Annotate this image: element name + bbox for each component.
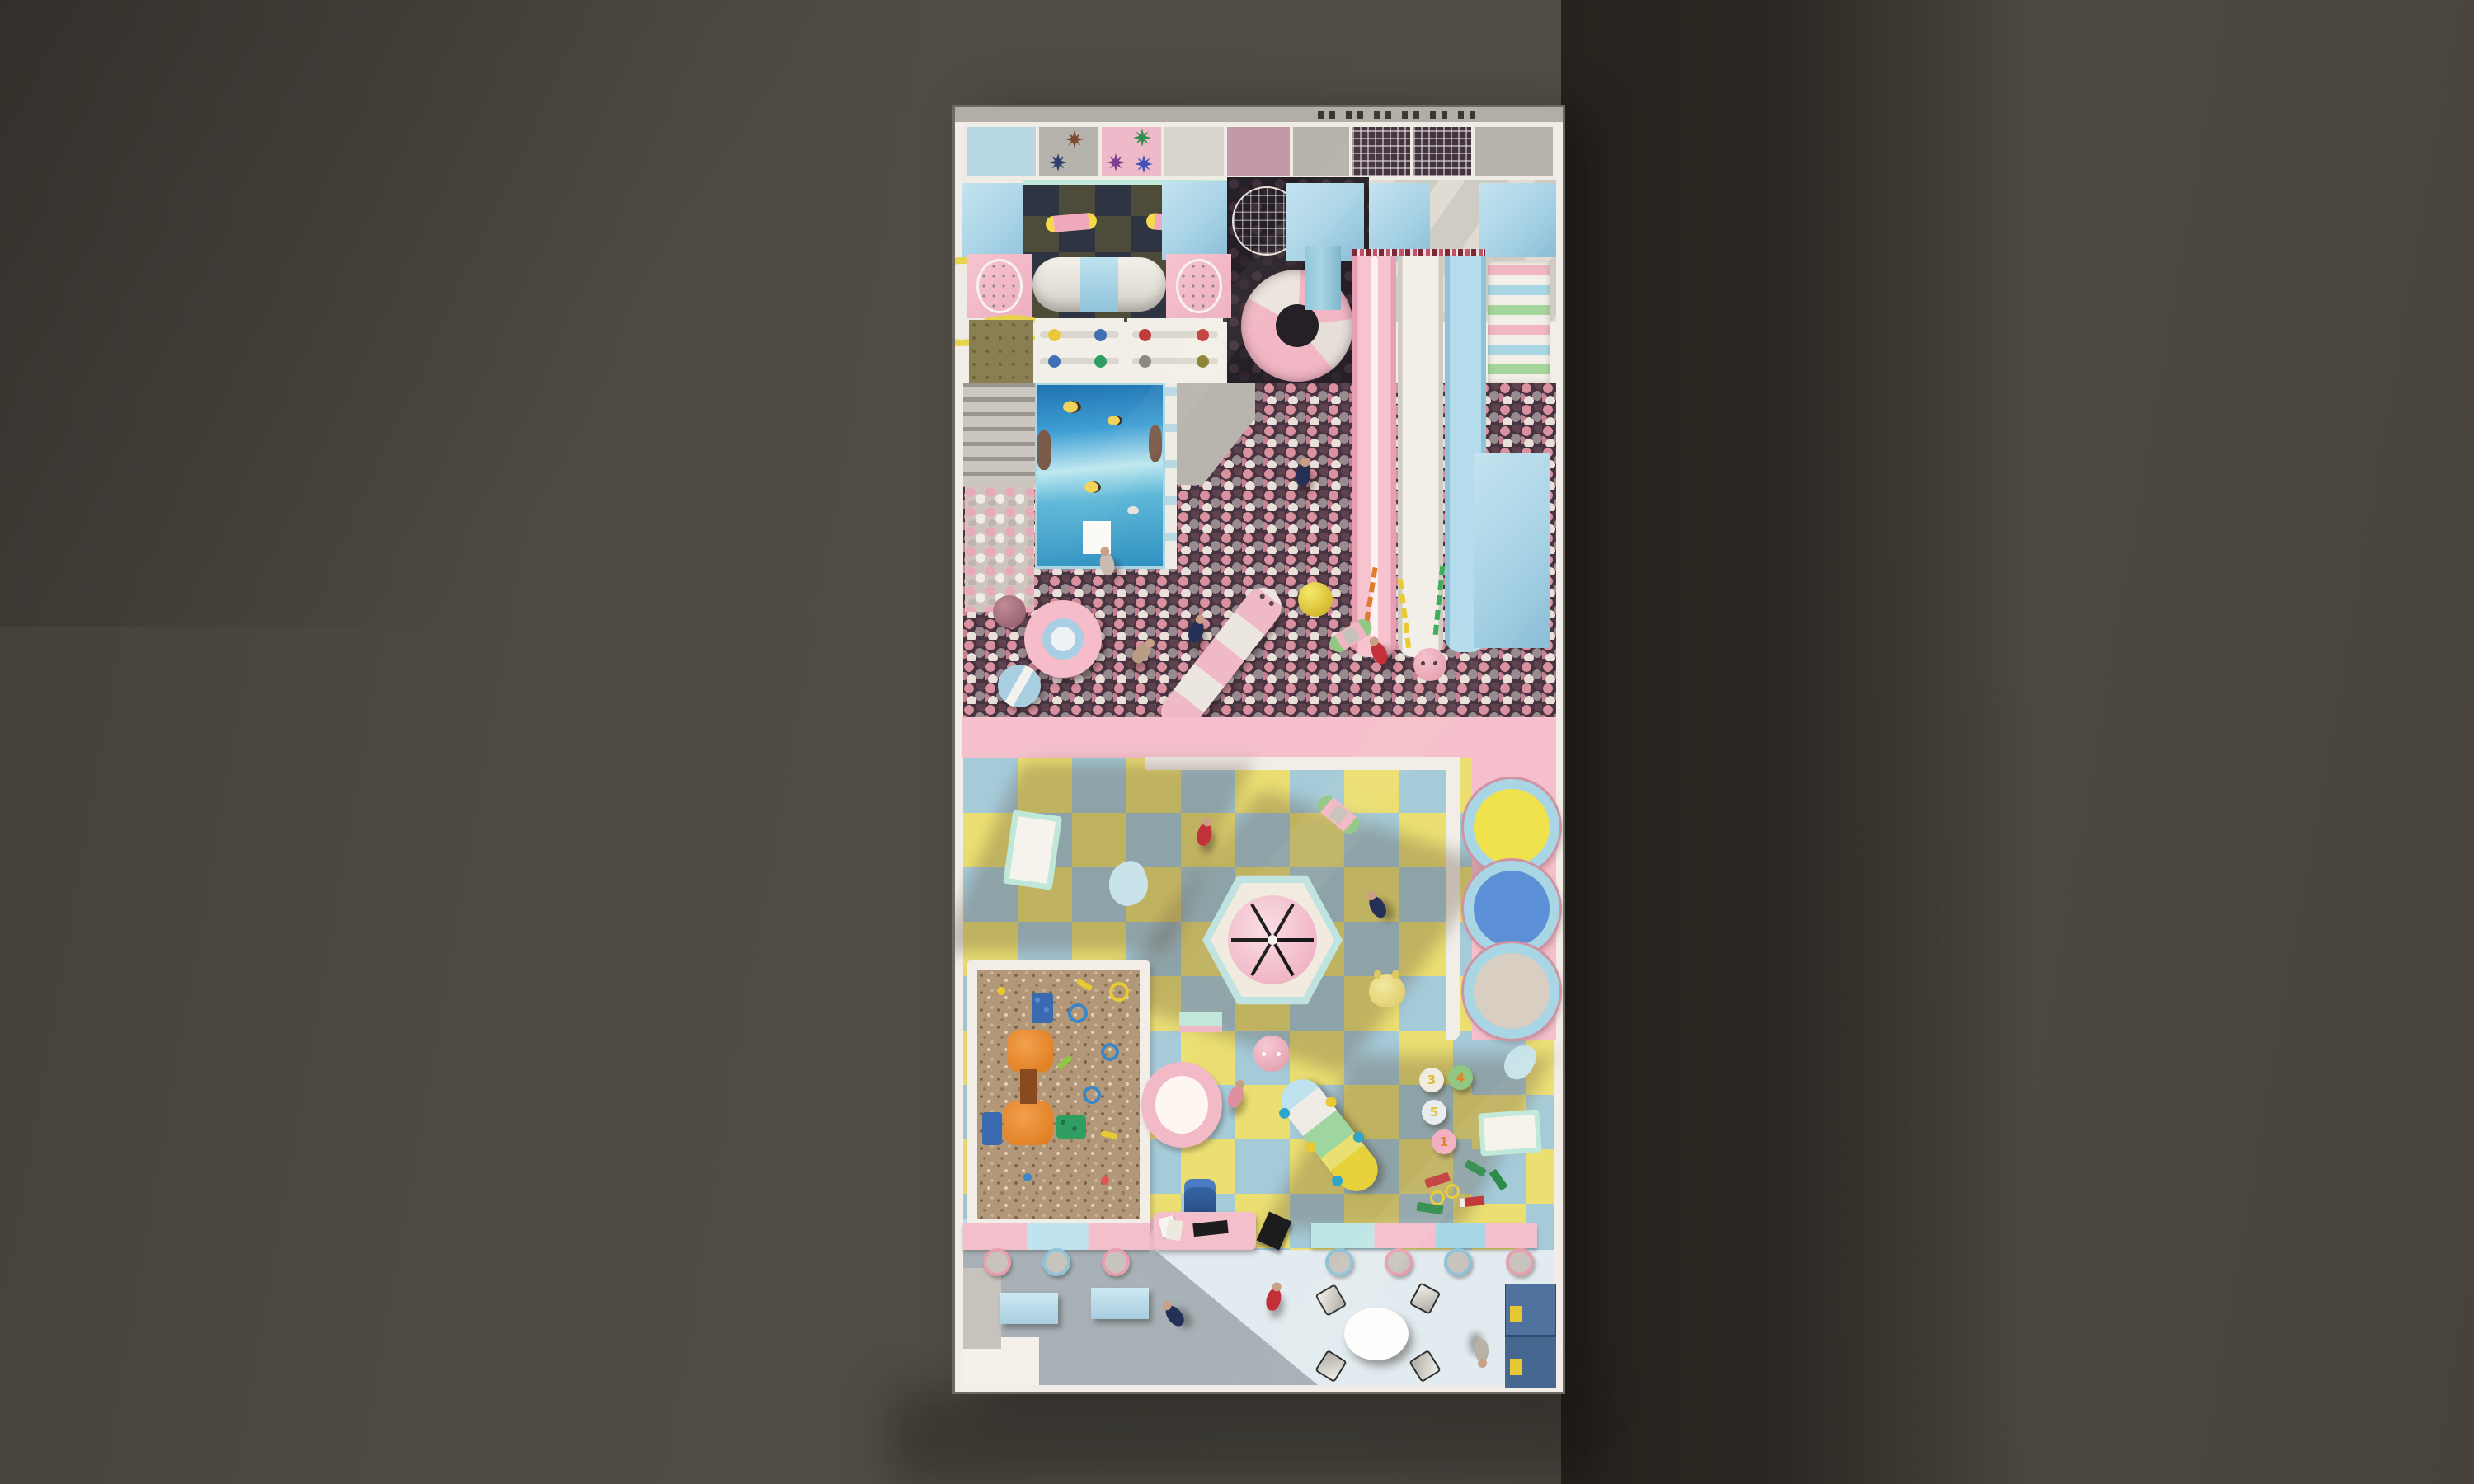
deck-toy xyxy=(1045,212,1098,232)
panel-spinners-pink xyxy=(1102,127,1161,176)
pink-ball-toy xyxy=(1253,1036,1290,1072)
round-stool xyxy=(1042,1248,1070,1276)
spiky-massage-ball xyxy=(1298,582,1333,617)
cylinder-blue-band xyxy=(1080,257,1118,312)
caterpillar-eye xyxy=(1259,593,1266,599)
track-ball xyxy=(1048,355,1061,368)
obstacle-rope xyxy=(1402,579,1407,648)
cabinet-label xyxy=(1510,1306,1522,1322)
stone-digit: 3 xyxy=(1427,1073,1436,1087)
gray-block xyxy=(963,1268,1001,1349)
track-ball xyxy=(1139,329,1151,341)
fish-icon xyxy=(1063,401,1081,413)
padded-block xyxy=(1479,183,1556,257)
round-trampoline-beige xyxy=(1464,943,1559,1039)
fish-icon xyxy=(1127,506,1139,514)
toy-shovel xyxy=(1056,1054,1073,1069)
caterpillar-eye xyxy=(1268,600,1275,607)
staircase xyxy=(963,383,1036,486)
sand-table xyxy=(1007,1030,1053,1073)
net-panel xyxy=(1413,127,1471,176)
reception-desk xyxy=(1154,1212,1256,1250)
duck-ear xyxy=(1374,970,1381,979)
panel-gray xyxy=(1475,127,1553,176)
padded-block xyxy=(1162,181,1227,260)
obstacle-rope xyxy=(1437,566,1442,635)
drum-float xyxy=(998,665,1041,707)
round-stool xyxy=(1444,1248,1472,1276)
donut-float xyxy=(1024,600,1102,678)
toy-ring xyxy=(1068,1003,1088,1023)
ball-eye xyxy=(1277,1052,1281,1056)
ambient-corner-shadow xyxy=(0,0,825,627)
toy-dot xyxy=(997,987,1005,995)
duck-ear xyxy=(1392,970,1399,979)
round-stool xyxy=(1102,1248,1130,1276)
shoe-cabinet xyxy=(1505,1284,1556,1388)
baby-cot xyxy=(1003,810,1062,890)
candy-stripe-bar xyxy=(1352,249,1485,256)
paper-sheet xyxy=(1165,1219,1183,1241)
toy-shovel xyxy=(1076,978,1094,991)
toy-ring xyxy=(1109,982,1129,1002)
ball-track-shelf xyxy=(1035,318,1124,383)
soft-bench xyxy=(1091,1288,1149,1319)
panel-light xyxy=(1164,127,1224,176)
crawl-cylinder xyxy=(1032,257,1166,312)
ball-eye xyxy=(1262,1052,1266,1056)
spinner-star-icon xyxy=(1107,153,1125,171)
toy-dot xyxy=(1023,1173,1032,1181)
stone-digit: 4 xyxy=(1456,1070,1465,1085)
panel-mauve xyxy=(1227,127,1290,176)
spiral-hole xyxy=(1276,304,1319,347)
track-ball xyxy=(1139,355,1151,368)
building-cast-shadow xyxy=(1561,0,2031,1484)
round-trampoline-blue xyxy=(1464,861,1559,956)
spinner-star-icon xyxy=(1065,130,1084,148)
floor-contact-shadow xyxy=(891,1390,1600,1484)
trampoline-block xyxy=(967,254,1032,318)
stepping-stone: 4 xyxy=(1448,1065,1473,1090)
track-ball xyxy=(1048,329,1061,341)
stepping-stone: 5 xyxy=(1422,1100,1446,1125)
track-ball xyxy=(1094,355,1107,368)
lego-block xyxy=(1032,993,1053,1023)
sand-table xyxy=(1004,1101,1053,1145)
stepping-stone: 3 xyxy=(1419,1068,1444,1092)
panel-blue xyxy=(967,127,1036,176)
spinner-star-icon xyxy=(1135,155,1153,173)
soft-bench xyxy=(1000,1293,1058,1324)
panel-spinners-gray xyxy=(1039,127,1098,176)
sand-bench-blue xyxy=(982,1112,1002,1145)
pink-border-band xyxy=(962,717,1556,758)
roller-slide xyxy=(1488,261,1550,384)
sign-board xyxy=(1192,1220,1228,1237)
pink-slide-lane xyxy=(1352,256,1396,657)
olive-mat xyxy=(969,320,1033,383)
duck-toy xyxy=(1369,974,1405,1007)
fish-icon xyxy=(1108,416,1122,425)
donut-center xyxy=(1051,627,1075,651)
track-ball xyxy=(1094,329,1107,341)
cabinet-label xyxy=(1510,1359,1522,1375)
mesh-oval-mat xyxy=(976,259,1023,313)
reef-rock xyxy=(1037,430,1051,470)
playground-floorplan: 3 4 5 1 xyxy=(955,107,1563,1392)
stone-digit: 5 xyxy=(1430,1105,1438,1120)
spinner-star-icon xyxy=(1133,129,1151,147)
cubby-wall-left xyxy=(963,1223,1150,1250)
toy-dot xyxy=(1101,1176,1109,1185)
spinner-star-icon xyxy=(1049,153,1067,171)
round-stool xyxy=(1506,1248,1534,1276)
round-stool xyxy=(983,1248,1011,1276)
table-connector xyxy=(1020,1069,1037,1104)
